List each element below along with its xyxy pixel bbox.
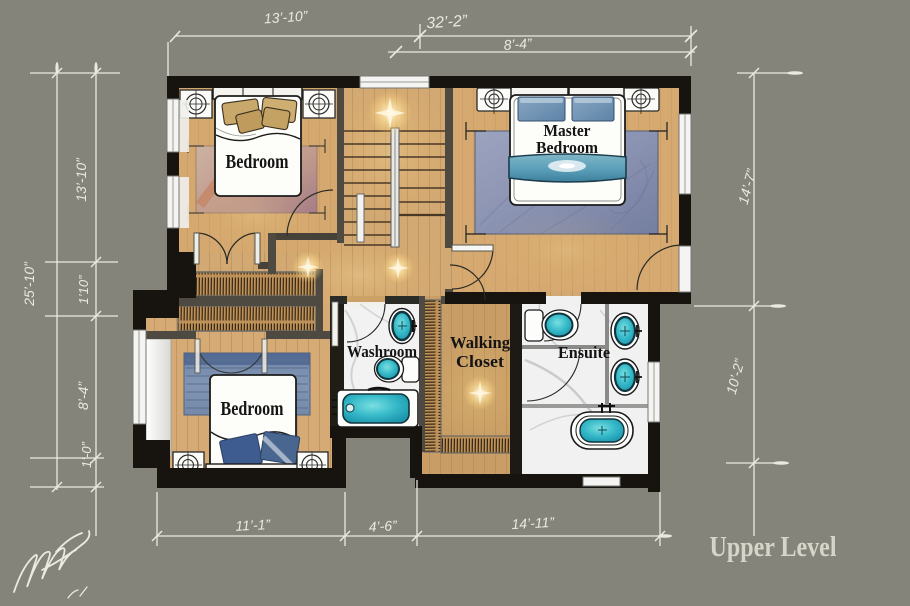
svg-text:13’-10”: 13’-10” <box>73 157 89 202</box>
svg-text:4’-6”: 4’-6” <box>368 517 398 535</box>
svg-text:Bedroom: Bedroom <box>221 398 284 420</box>
svg-text:32’-2”: 32’-2” <box>426 13 469 33</box>
svg-text:11’-1”: 11’-1” <box>235 516 272 534</box>
svg-text:8’-4”: 8’-4” <box>75 381 91 410</box>
svg-text:25’-10”: 25’-10” <box>21 261 37 307</box>
svg-text:Ensuite: Ensuite <box>558 343 610 362</box>
svg-text:Bedroom: Bedroom <box>536 138 598 157</box>
svg-text:1’-0”: 1’-0” <box>79 441 94 468</box>
svg-text:13’-10”: 13’-10” <box>263 7 309 26</box>
svg-text:14’-11”: 14’-11” <box>511 514 556 532</box>
svg-text:Closet: Closet <box>456 352 504 371</box>
svg-text:Washroom: Washroom <box>347 342 417 361</box>
svg-text:1’10”: 1’10” <box>76 275 91 305</box>
svg-text:Walking: Walking <box>450 333 510 352</box>
svg-text:8’-4”: 8’-4” <box>503 35 533 53</box>
svg-text:Upper Level: Upper Level <box>710 532 837 563</box>
svg-text:Bedroom: Bedroom <box>226 151 289 173</box>
